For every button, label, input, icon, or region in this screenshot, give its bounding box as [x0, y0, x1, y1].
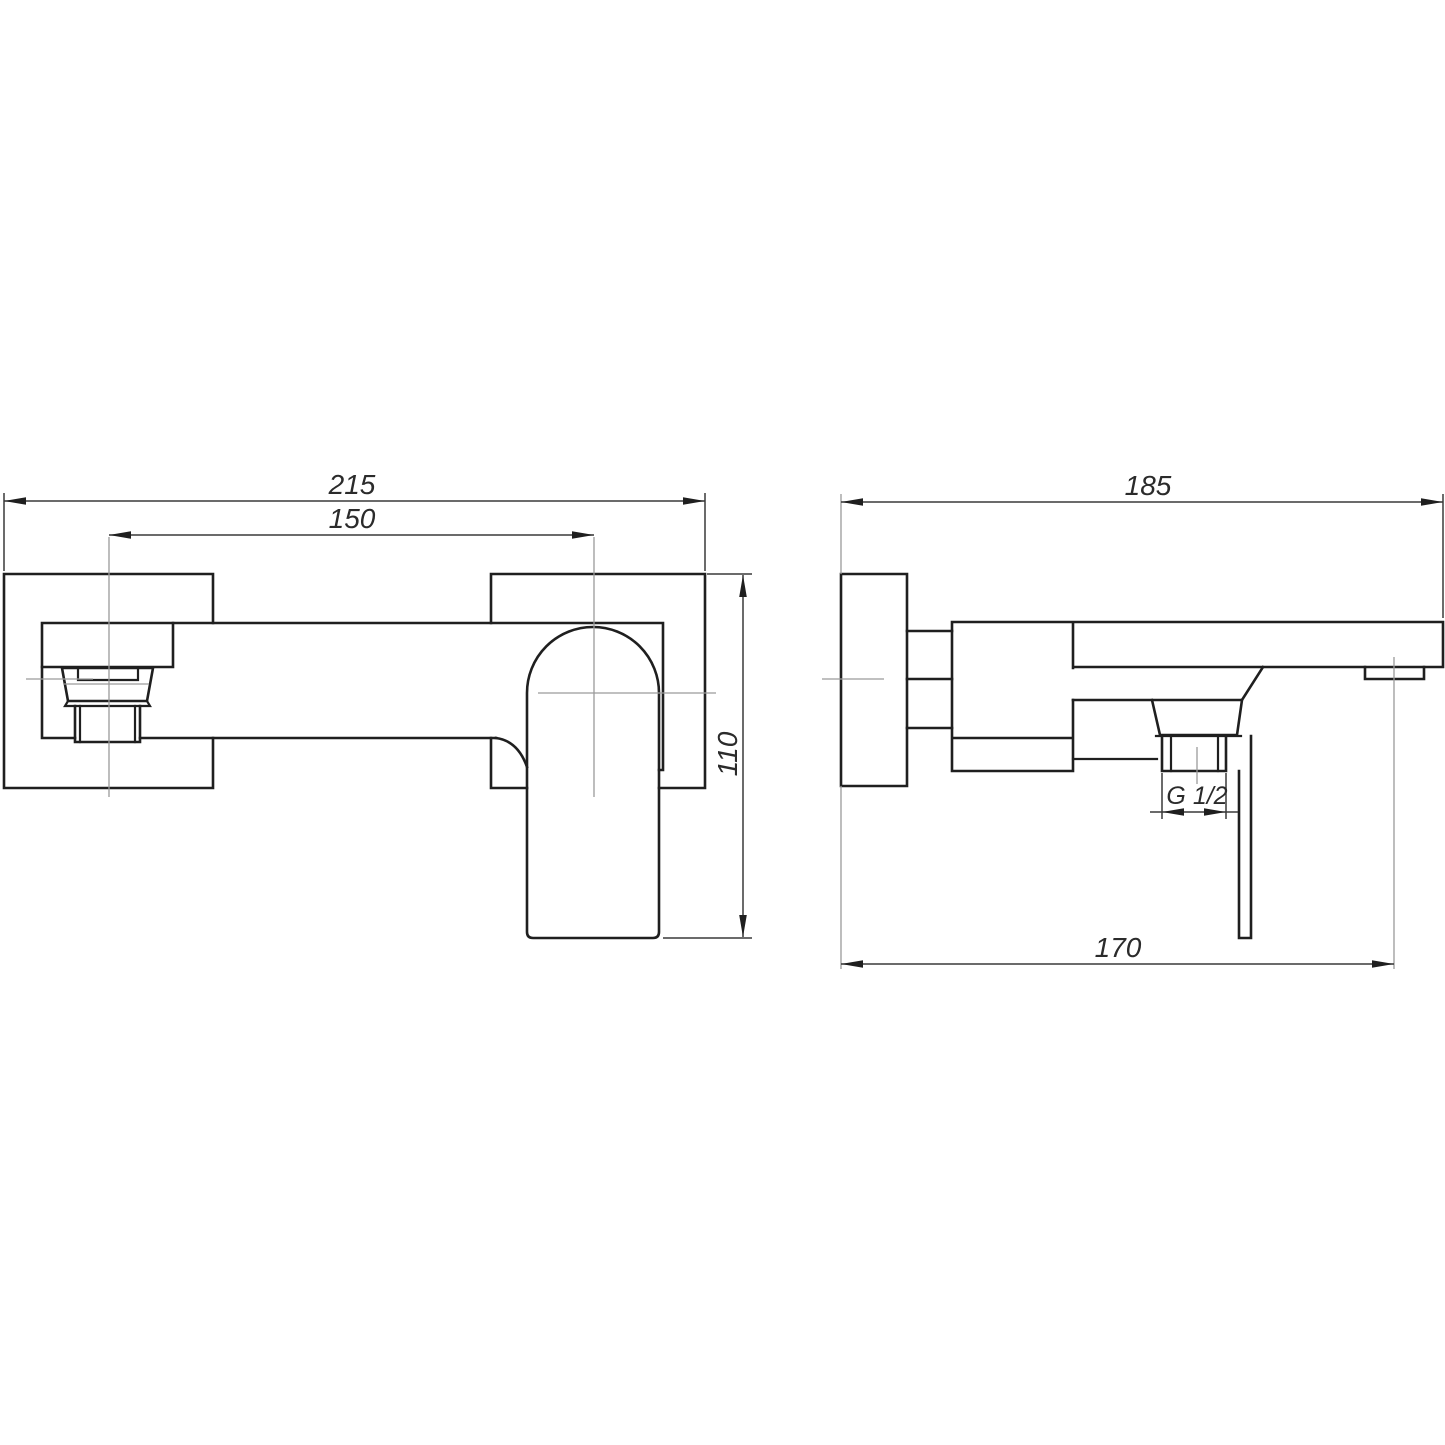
aerator-pipe: [75, 706, 140, 742]
spout-block: [42, 623, 173, 667]
drawing-page: 215 150 110: [0, 0, 1445, 1445]
arrowhead-top: [739, 575, 747, 597]
arrowhead-bottom: [739, 915, 747, 937]
dimension-170: 170: [841, 932, 1394, 968]
side-view: 185 G 1/2 170: [822, 470, 1443, 969]
arrowhead-left: [841, 960, 863, 968]
arrowhead-right: [683, 497, 705, 505]
dim-label-215: 215: [328, 469, 376, 500]
arrowhead-right: [1421, 498, 1443, 506]
dim-label-185: 185: [1125, 470, 1172, 501]
dimension-110: 110: [663, 574, 752, 938]
dim-label-110: 110: [712, 731, 743, 776]
mixer-body-bar: [42, 623, 663, 770]
dimension-150: 150: [109, 503, 594, 539]
thread-nut-inner-walls: [1171, 736, 1218, 771]
arrowhead-left: [4, 497, 26, 505]
dimension-g12: G 1/2: [1150, 773, 1238, 819]
arrowhead-left: [109, 531, 131, 539]
connector-stubs: [907, 631, 952, 728]
dim-label-g12: G 1/2: [1166, 782, 1227, 810]
front-view: 215 150 110: [4, 469, 752, 938]
arrowhead-right: [1372, 960, 1394, 968]
aerator-pipe-inner-walls: [80, 706, 135, 742]
lever-handle: [527, 627, 659, 938]
cartridge-trapezoid: [1152, 700, 1242, 735]
drawing-canvas: 215 150 110: [0, 0, 1445, 1445]
dim-label-170: 170: [1095, 932, 1142, 963]
wall-plate-side: [841, 574, 907, 786]
lever-side: [1239, 736, 1251, 938]
aerator-inner-rect: [78, 668, 138, 680]
arrowhead-left: [841, 498, 863, 506]
body-handle-fillet: [496, 738, 527, 767]
dim-label-150: 150: [329, 503, 376, 534]
arrowhead-right: [572, 531, 594, 539]
body-underside-bulge: [1073, 667, 1263, 700]
dimension-185: 185: [841, 470, 1443, 618]
